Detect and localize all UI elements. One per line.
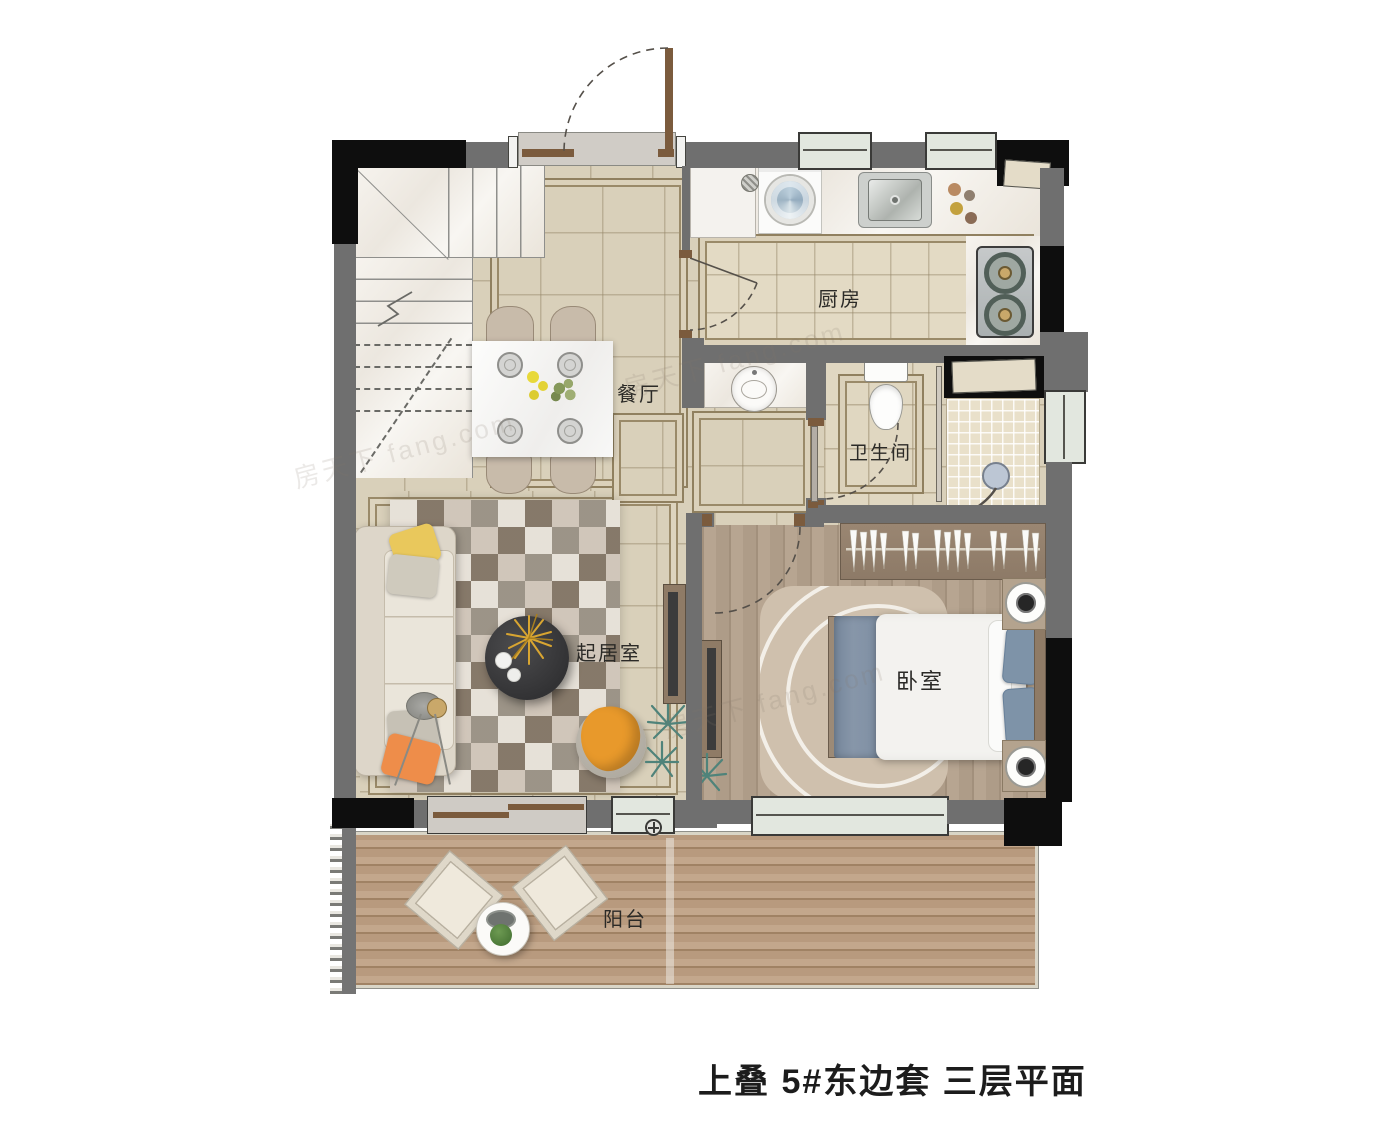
balcony-railing-ticks [330,824,342,994]
wall-kitchen-right [1040,168,1064,246]
bathroom-label: 卫生间 [849,438,912,465]
produce-item [950,202,963,215]
shower-shelf [951,359,1036,394]
produce-item [964,190,975,201]
wall-left [334,244,356,802]
living-room-label: 起居室 [576,637,642,666]
tv-living [668,592,678,696]
sliding-door-panel [433,812,509,818]
wall-black-bedroom-right [1046,638,1072,802]
wall-bottom [587,800,611,828]
place-setting [557,418,583,444]
coffee-table-plate [507,668,521,682]
wall-top [872,142,925,168]
hallway-tile-panel-right [692,411,812,513]
sink-drain-icon [890,195,900,205]
coffee-table-plate [495,652,512,669]
bed-headboard [1034,618,1046,756]
dining-chair [550,452,596,494]
hallway-tile-panel-left [612,413,684,503]
lemons-decor [527,371,539,383]
shower-partition [936,366,942,502]
balcony-plant [490,924,512,946]
entrance-door-arc [563,47,675,159]
kitchen-window [925,132,997,170]
wall-top [686,142,800,168]
staircase-dashed-line [354,388,472,390]
wall-bathroom-bottom [818,505,1072,523]
toilet-tank [864,360,908,382]
staircase-dashed-line [354,366,472,368]
kitchen-label: 厨房 [818,283,862,312]
nightstand-lamp [1007,748,1045,786]
balcony-railing [342,824,356,994]
drain-icon [741,174,759,192]
shower-window [1044,390,1086,464]
wall-living-bedroom [686,527,702,802]
bathroom-door-leaf [811,426,818,502]
wall-black-bottom-right [1004,798,1062,846]
vent-icon [645,819,662,836]
wall-bottom [675,800,717,828]
floor-lamp-disc [427,698,447,718]
wardrobe-hangers [846,527,1040,577]
floorplan-canvas: 厨房 餐厅 卫生间 起居室 卧室 阳台 房天下 fang.com 房天下 fan… [0,0,1400,1141]
stove-burner [984,252,1026,294]
balcony-deck-divider [666,838,674,984]
kitchen-door-jamb [679,250,692,258]
produce-item [965,212,977,224]
wall-bedroom-bottom [715,800,755,824]
living-room-window [611,796,675,834]
bedroom-door-jamb [702,514,712,526]
plan-title: 上叠 5#东边套 三层平面 [698,1054,1087,1103]
wall-bathroom-left [806,363,826,420]
wall-bedroom-right [1046,523,1072,638]
entrance-jamb [508,136,518,168]
staircase-upper-treads [448,164,545,258]
flower-sprig-decor [545,374,581,406]
wall-black-left-column [332,140,358,244]
wall-kitchen-left [682,166,690,258]
produce-item [948,183,961,196]
wall-black-bottom-left [332,798,414,828]
washing-machine-drum [766,176,814,224]
kitchen-window [798,132,872,170]
dining-chair [486,452,532,494]
bedroom-door-arc [714,527,804,617]
bedroom-door-jamb [794,514,805,526]
balcony-label: 阳台 [603,903,647,932]
entrance-jamb [676,136,686,168]
washbasin-bowl [741,380,767,399]
staircase-dashed-line [354,344,472,346]
wall-black-kitchen-right [1040,246,1064,332]
wall-bedroom-bottom [947,800,1004,824]
sliding-door-panel [508,804,584,810]
bedroom-bay-window [751,796,949,836]
nightstand-lamp [1007,584,1045,622]
sofa-pillow-grey [386,553,440,598]
staircase-break-symbol [376,288,418,332]
staircase-dashed-line [354,410,472,412]
bedroom-label: 卧室 [896,664,944,696]
place-setting [497,352,523,378]
stove-burner [984,294,1026,336]
